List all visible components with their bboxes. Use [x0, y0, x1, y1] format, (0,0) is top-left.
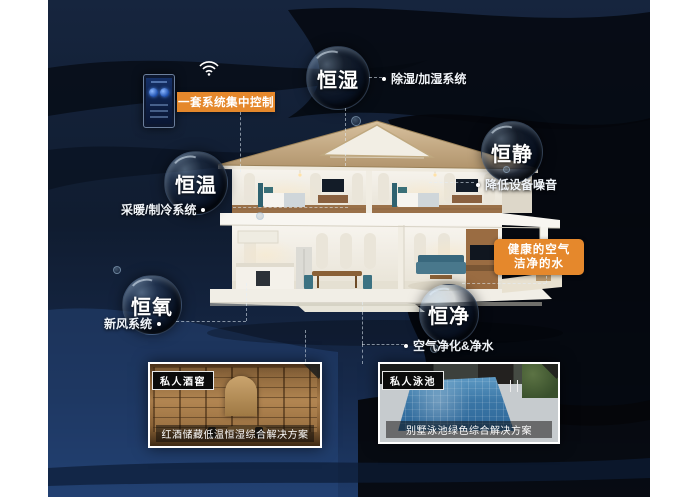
connector-highlight-h [462, 283, 546, 284]
connector-humidity [369, 77, 382, 78]
connector-highlight-v [546, 276, 547, 283]
central-control-label: 一套系统集中控制 [177, 92, 275, 112]
bullet-icon [157, 322, 161, 326]
feature-purity: 空气净化&净水 [404, 337, 494, 354]
pool-caption: 别墅泳池绿色综合解决方案 [386, 421, 552, 438]
highlight-box: 健康的空气 洁净的水 [494, 239, 584, 275]
pool-ladder [510, 380, 518, 392]
wifi-icon [198, 58, 220, 76]
bubble-quiet: 恒静 [481, 121, 543, 183]
control-panel-statusbar [151, 81, 167, 83]
case-photo-wine-cellar: 私人酒窖 红酒储藏低温恒湿综合解决方案 [148, 362, 322, 448]
control-panel-row [150, 116, 168, 118]
highlight-line1: 健康的空气 [508, 243, 571, 257]
mini-bubble [113, 266, 121, 274]
bullet-icon [404, 344, 408, 348]
pool-tag: 私人泳池 [382, 371, 444, 390]
mini-bubble [503, 166, 510, 173]
connector-control [240, 112, 241, 172]
mini-bubble [256, 212, 264, 220]
connector-purity [362, 344, 404, 345]
connector-oxygen-v [246, 283, 247, 321]
connector-purity-v [362, 302, 363, 344]
feature-oxygen: 新风系统 [104, 315, 161, 332]
control-panel-screen [146, 78, 172, 124]
feature-purity-text: 空气净化&净水 [413, 337, 494, 354]
control-panel-row [150, 104, 168, 106]
feature-quiet-text: 降低设备噪音 [485, 176, 557, 193]
dial-icon [149, 88, 158, 97]
bullet-icon [476, 183, 480, 187]
connector-humidity-v [345, 108, 346, 166]
wine-cellar-door [225, 376, 257, 416]
wine-cellar-tag: 私人酒窖 [152, 371, 214, 390]
connector-pool [362, 344, 363, 364]
feature-humidity: 除湿/加湿系统 [382, 70, 466, 87]
infographic-stage: 一套系统集中控制 恒湿 恒静 恒温 恒氧 恒净 除湿/加湿系统 降低设备噪音 采… [0, 0, 700, 497]
highlight-line2: 洁净的水 [514, 257, 564, 271]
connector-oxygen [176, 321, 246, 322]
connector-temperature [233, 207, 348, 208]
bubble-humidity: 恒湿 [306, 46, 370, 110]
smart-control-panel [143, 74, 175, 128]
control-panel-row [150, 110, 168, 112]
mini-bubble [351, 116, 361, 126]
wine-cellar-caption: 红酒储藏低温恒湿综合解决方案 [156, 425, 314, 442]
feature-oxygen-text: 新风系统 [104, 315, 152, 332]
bubble-purity: 恒净 [419, 284, 479, 344]
feature-quiet: 降低设备噪音 [476, 176, 557, 193]
connector-cellar [305, 330, 306, 362]
connector-quiet [429, 182, 474, 183]
feature-temperature-text: 采暖/制冷系统 [121, 201, 196, 218]
feature-temperature: 采暖/制冷系统 [121, 201, 205, 218]
bullet-icon [201, 208, 205, 212]
feature-humidity-text: 除湿/加湿系统 [391, 70, 466, 87]
dial-icon [160, 88, 169, 97]
case-photo-pool: 私人泳池 别墅泳池绿色综合解决方案 [378, 362, 560, 444]
bullet-icon [382, 77, 386, 81]
